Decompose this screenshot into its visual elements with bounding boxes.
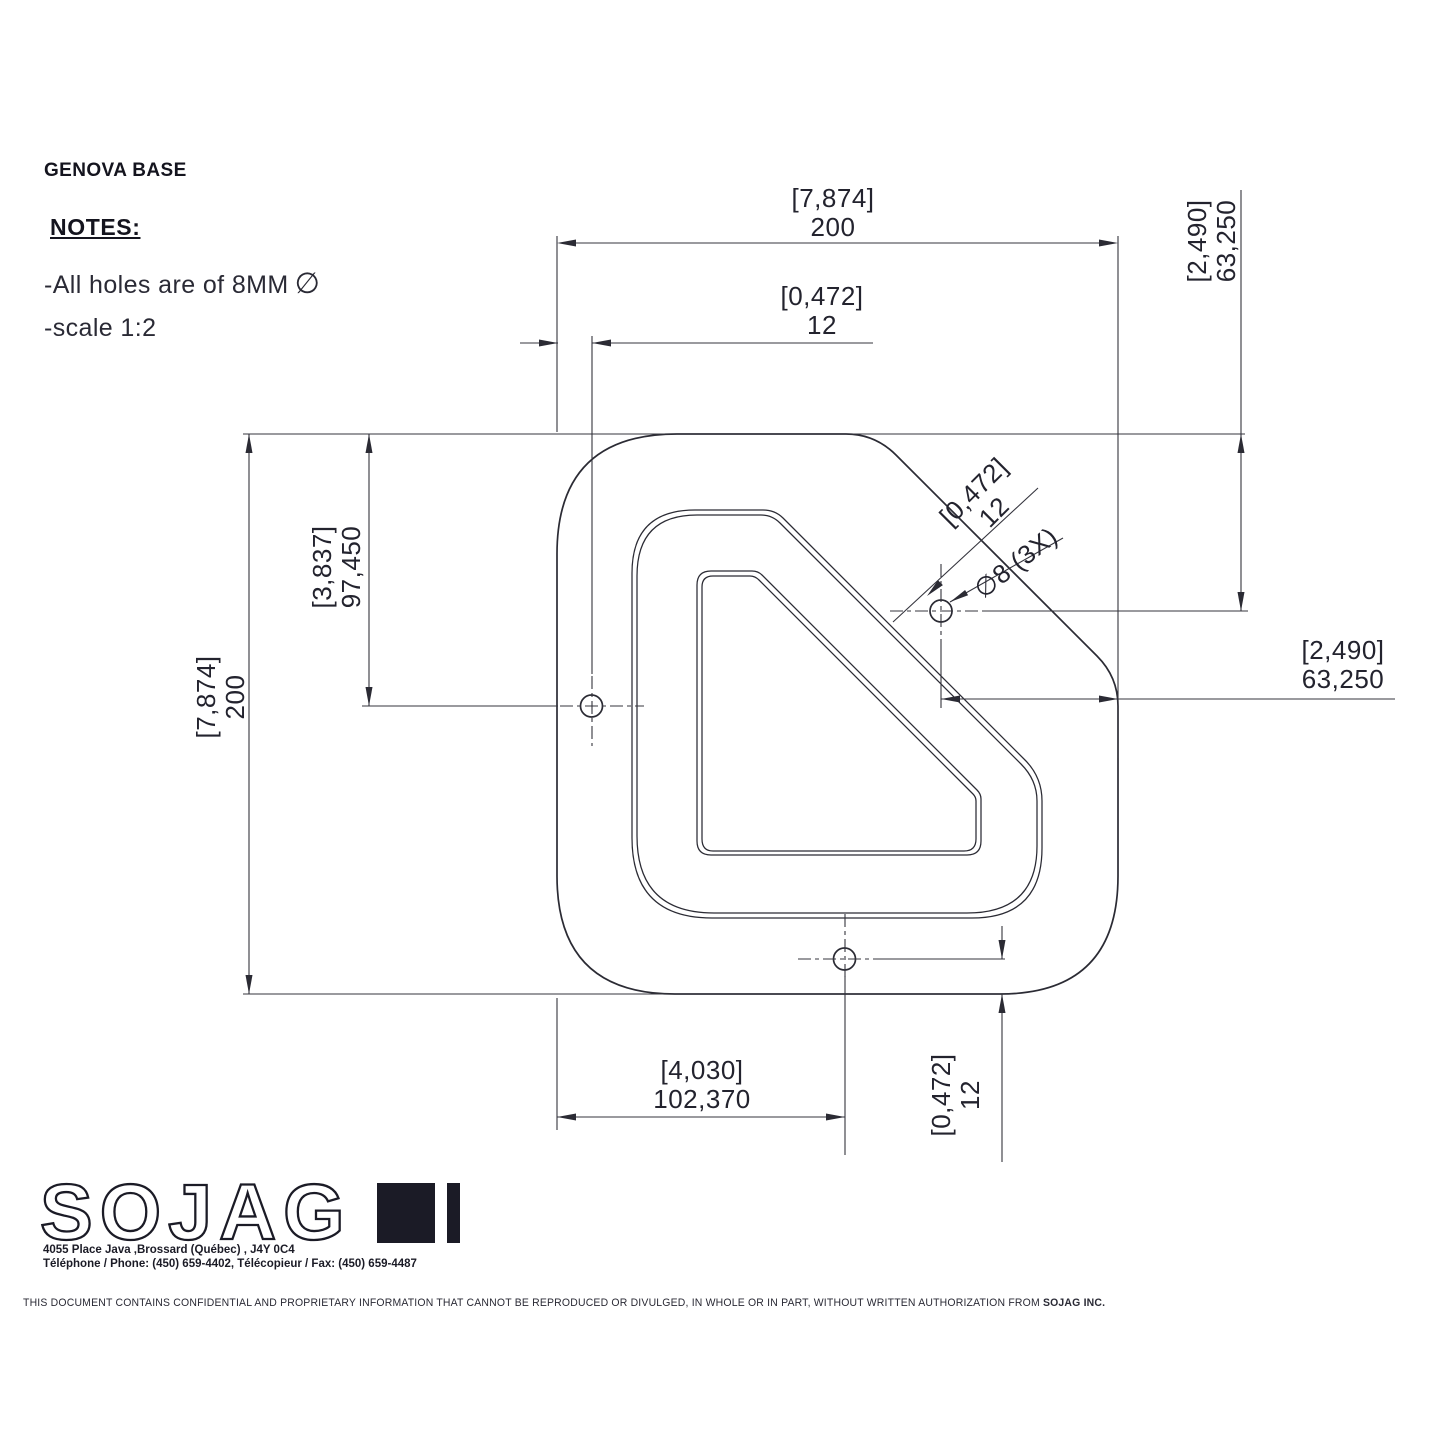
note-scale: -scale 1:2 [44, 314, 156, 343]
logo-wordmark: SOJAG [40, 1167, 352, 1256]
company-address: 4055 Place Java ,Brossard (Québec) , J4Y… [43, 1244, 295, 1256]
island-contour-inner [702, 576, 976, 851]
company-phone-fax: Téléphone / Phone: (450) 659-4402, Téléc… [43, 1258, 417, 1270]
arrowheads [246, 240, 1245, 1121]
outer-contour [557, 434, 1118, 994]
dim-bottom-hole-offset: [0,472] 12 [927, 1053, 985, 1136]
island-contour-outer [697, 571, 981, 855]
extension-lines [243, 236, 1248, 1155]
dim-tr-hole-right: [2,490] 63,250 [1301, 636, 1384, 694]
notes-heading: NOTES: [50, 214, 141, 241]
dim-tr-hole-top: [2,490] 63,250 [1183, 199, 1241, 282]
logo-group: SOJAG [40, 1167, 460, 1256]
part-geometry [557, 434, 1118, 994]
dim-top-hole-offset: [0,472] 12 [780, 282, 863, 340]
confidentiality-company: SOJAG INC. [1043, 1297, 1105, 1309]
page-title: GENOVA BASE [44, 160, 187, 182]
centerlines [560, 564, 988, 978]
confidentiality-notice: THIS DOCUMENT CONTAINS CONFIDENTIAL AND … [23, 1297, 1105, 1309]
logo-bar [447, 1183, 460, 1243]
diameter-icon: ∅ [295, 268, 321, 300]
dim-top-width: [7,874] 200 [791, 184, 874, 242]
dim-left-hole-height: [3,837] 97,450 [308, 525, 366, 608]
drawing-sheet: SOJAG GENOVA BASE NOTES: -All holes are … [0, 0, 1445, 1445]
dim-bottom-hole-x: [4,030] 102,370 [653, 1056, 750, 1114]
note-holes: -All holes are of 8MM∅ [44, 266, 320, 301]
logo-square [377, 1183, 435, 1243]
dim-left-height: [7,874] 200 [192, 655, 250, 738]
